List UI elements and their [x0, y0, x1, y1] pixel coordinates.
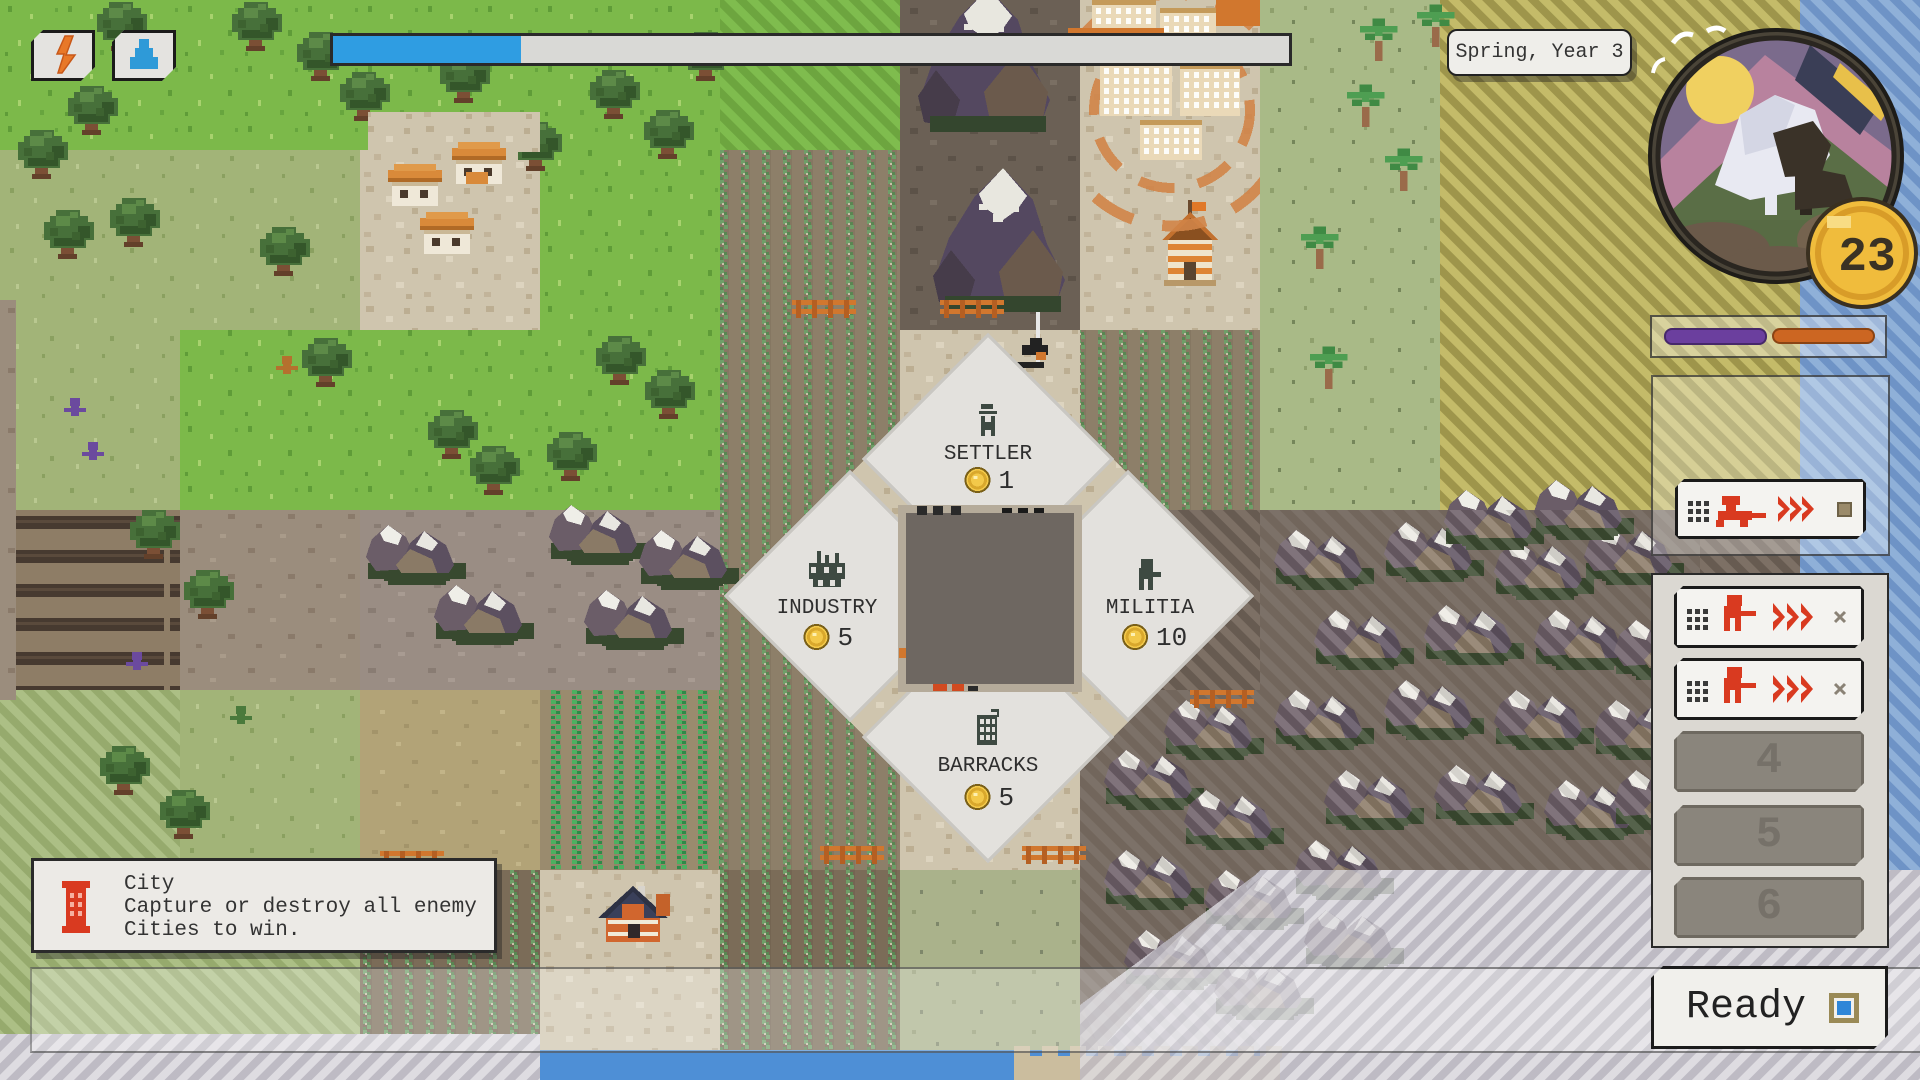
- svg-text:MILITIA: MILITIA: [1106, 597, 1195, 620]
- svg-text:INDUSTRY: INDUSTRY: [777, 597, 878, 620]
- svg-text:5: 5: [838, 623, 854, 653]
- svg-text:23: 23: [1838, 231, 1896, 285]
- svg-text:1: 1: [999, 466, 1015, 496]
- svg-text:5: 5: [999, 783, 1015, 813]
- svg-text:10: 10: [1156, 623, 1187, 653]
- svg-text:BARRACKS: BARRACKS: [938, 755, 1039, 778]
- svg-text:SETTLER: SETTLER: [944, 443, 1033, 466]
